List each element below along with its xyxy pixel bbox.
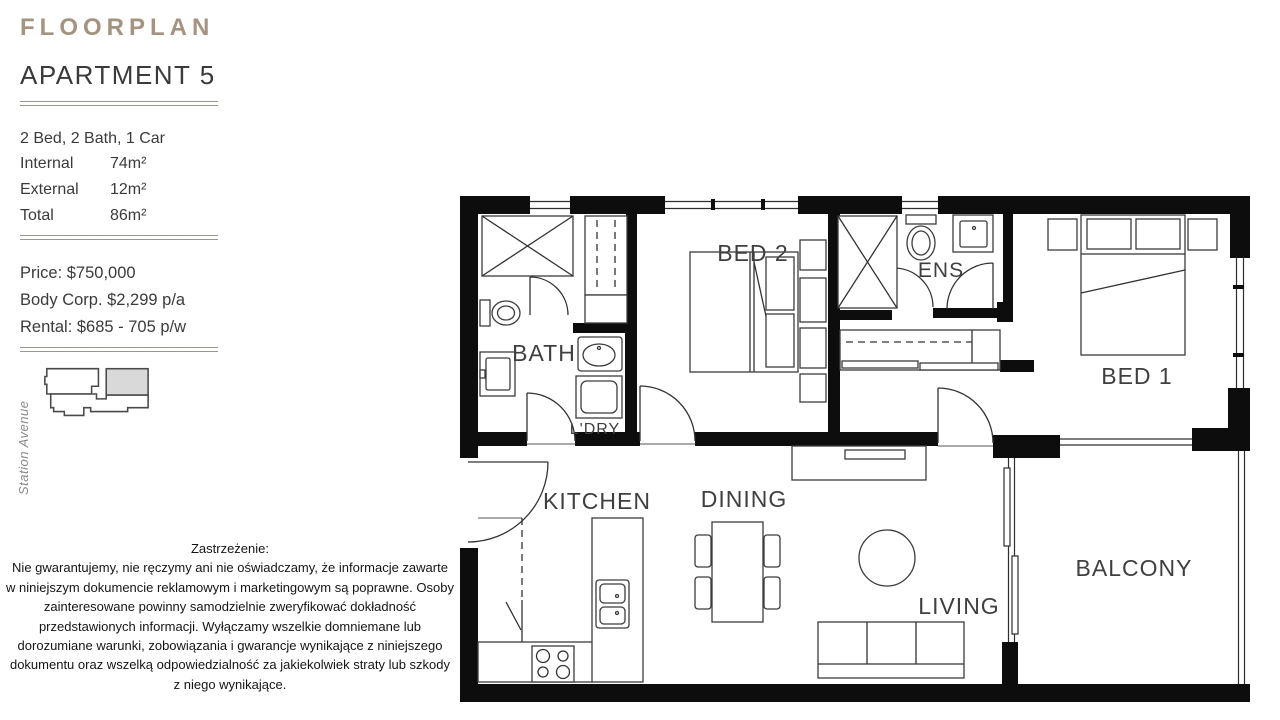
room-label-balcony: BALCONY <box>1076 555 1193 581</box>
price-line: Price: $750,000 <box>20 264 136 283</box>
sofa <box>818 622 964 678</box>
linen-cupboard <box>585 216 627 295</box>
bathroom-fixtures <box>480 216 627 418</box>
slider-panel <box>1012 556 1018 634</box>
area-label: Total <box>20 207 54 224</box>
site-unit-outline <box>51 394 148 415</box>
site-unit-highlighted <box>106 369 148 395</box>
toilet-tank <box>906 215 936 224</box>
brochure-eyebrow: FLOORPLAN <box>20 14 214 42</box>
area-value: 74m² <box>110 155 146 173</box>
area-row: Internal 74m² <box>20 155 230 173</box>
room-label-dining: DINING <box>701 486 788 512</box>
hall-door <box>938 388 993 443</box>
area-row: External 12m² <box>20 181 230 199</box>
bed2-door <box>640 386 695 441</box>
room-label-bed1: BED 1 <box>1101 363 1172 389</box>
kitchen-fixtures <box>478 518 643 682</box>
dining-table <box>712 522 763 622</box>
area-label: External <box>20 181 79 198</box>
floorplan-drawing: BED 2 ENS BED 1 BATH L'DRY KITCHEN DININ… <box>452 188 1252 714</box>
slider-panel <box>1004 468 1010 546</box>
room-label-kitchen: KITCHEN <box>543 488 651 514</box>
separator <box>20 235 218 240</box>
shelf <box>800 374 826 402</box>
separator <box>20 347 218 352</box>
window-mullion <box>711 199 715 210</box>
site-unit-outline <box>45 369 99 394</box>
rental-line: Rental: $685 - 705 p/w <box>20 318 186 337</box>
dining-furniture <box>695 522 780 622</box>
shelf <box>800 240 826 270</box>
bedside-table <box>1188 219 1217 250</box>
bed1-furniture <box>1048 215 1217 355</box>
pillow <box>766 314 794 367</box>
ensuite-fixtures <box>838 215 993 308</box>
shelf <box>800 278 826 322</box>
site-plan-thumbnail <box>40 364 152 426</box>
room-label-ens: ENS <box>918 259 964 282</box>
living-furniture <box>792 446 964 678</box>
page-title: APARTMENT 5 <box>20 60 216 91</box>
window-mullion <box>1233 353 1244 357</box>
room-label-living: LIVING <box>918 593 999 619</box>
area-label: Internal <box>20 155 73 172</box>
window-mullion <box>1233 285 1244 289</box>
shelf <box>800 328 826 368</box>
cabinet <box>585 295 627 323</box>
bedside-table <box>1048 219 1077 250</box>
entry-door <box>468 462 548 542</box>
area-value: 12m² <box>110 181 146 199</box>
street-label: Station Avenue <box>16 363 31 495</box>
room-label-bed2: BED 2 <box>717 240 788 266</box>
bath-shower-door <box>530 277 568 315</box>
wardrobe <box>840 330 1000 370</box>
area-row: Total 86m² <box>20 207 230 225</box>
pillow <box>1136 219 1180 249</box>
body-corp-line: Body Corp. $2,299 p/a <box>20 291 185 310</box>
toilet-tank <box>480 300 490 326</box>
robe-door-panel <box>920 363 998 370</box>
area-value: 86m² <box>110 207 146 225</box>
pillow <box>1087 219 1131 249</box>
room-label-bath: BATH <box>512 340 576 366</box>
floorplan-page: FLOORPLAN APARTMENT 5 2 Bed, 2 Bath, 1 C… <box>0 0 1280 720</box>
room-label-ldry: L'DRY <box>570 421 620 438</box>
unit-configuration: 2 Bed, 2 Bath, 1 Car <box>20 130 165 148</box>
disclaimer-text: Nie gwarantujemy, nie ręczymy ani nie oś… <box>6 558 454 694</box>
coffee-table <box>859 530 915 586</box>
bath-door <box>527 393 575 441</box>
disclaimer-block: Zastrzeżenie: Nie gwarantujemy, nie ręcz… <box>6 539 454 694</box>
window-mullion <box>761 199 765 210</box>
disclaimer-title: Zastrzeżenie: <box>6 539 454 558</box>
chair <box>764 535 780 567</box>
chair <box>695 535 711 567</box>
robe-door-panel <box>842 361 918 368</box>
chair <box>764 577 780 609</box>
chair <box>695 577 711 609</box>
separator <box>20 101 218 106</box>
